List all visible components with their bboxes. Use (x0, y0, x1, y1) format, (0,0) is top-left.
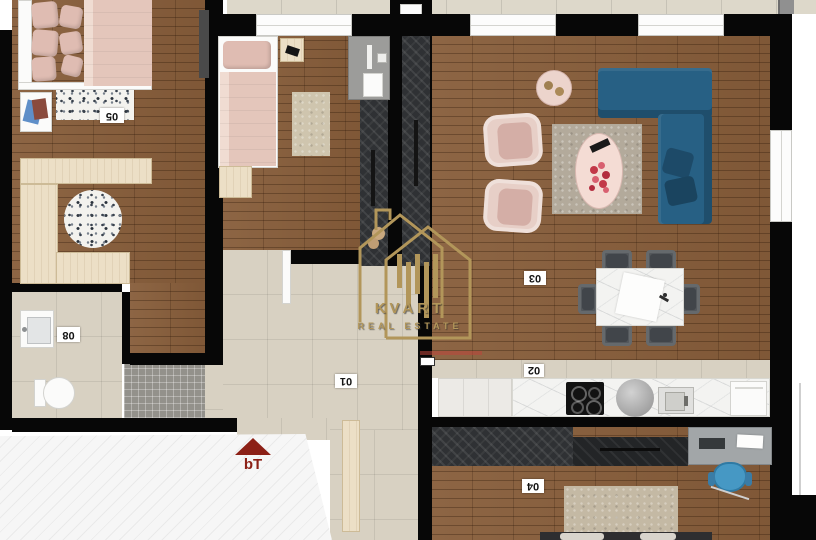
dining-table (596, 268, 684, 326)
cutoff-pillow (640, 533, 676, 540)
armchair-seat (497, 122, 533, 160)
room-label-02: 02 (524, 364, 544, 377)
shelf-item (367, 45, 372, 69)
entry-mosaic-floor (124, 364, 210, 418)
entrance-door-leaf (342, 420, 360, 532)
washbasin-bowl (27, 317, 51, 344)
window-living-east (770, 130, 792, 222)
room-label-04: 04 (522, 479, 544, 493)
wardrobe-row-right (573, 437, 688, 466)
bed-frame (18, 0, 32, 90)
pipe-shaft (778, 0, 794, 14)
kitchen-counter-left (438, 378, 512, 417)
armchair (482, 178, 543, 234)
pillow (31, 56, 57, 82)
kitchen-sink (658, 387, 694, 414)
desk-paper (737, 434, 764, 448)
armchair (482, 112, 543, 168)
room-label-08: 08 (57, 327, 80, 342)
wall-bathroom-north (12, 283, 122, 292)
cooktop (566, 382, 604, 415)
pillow (58, 4, 83, 29)
balcony-rail-line (799, 383, 801, 495)
pillow (31, 1, 60, 30)
room-label-05: 05 (100, 108, 124, 123)
brand-name: KVART (352, 300, 468, 318)
toilet (34, 376, 76, 410)
pillow (31, 29, 59, 57)
single-bed (218, 36, 278, 168)
wardrobe-handle (414, 120, 418, 186)
red-book (32, 98, 49, 120)
room-label-03: 03 (524, 271, 546, 285)
dining-chair (602, 324, 632, 346)
kitchen-column-hood (616, 379, 654, 417)
bed-blanket (220, 72, 276, 166)
bedroom-second-rug (292, 92, 330, 156)
floor-plan: 05 08 01 bT (0, 0, 816, 540)
wall-right-outer (770, 14, 792, 540)
cutoff-pillow (560, 533, 604, 540)
plan-marker (420, 357, 435, 366)
kitchen-floor-strip (432, 360, 770, 378)
office-chair (708, 460, 752, 502)
bed-foot-bench (219, 166, 252, 198)
bedroom-second-door-leaf (282, 250, 291, 304)
sofa-seat-top (598, 68, 712, 118)
entrance-arrow-icon (235, 438, 271, 455)
bedroom-main-door-leaf (199, 10, 209, 78)
flower-bouquet (588, 162, 612, 194)
window-living-1 (470, 14, 556, 36)
cutoff-furniture (540, 532, 712, 540)
wardrobe-handle (600, 448, 660, 451)
dining-chair (578, 284, 598, 314)
remote (589, 138, 610, 153)
cup (544, 81, 553, 90)
wardrobe-cream-top (20, 158, 152, 184)
wardrobe-cream-bottom (56, 252, 130, 284)
faucet (22, 327, 27, 332)
wall-bottom-right-corner (772, 495, 816, 540)
wardrobe-row-left (432, 427, 573, 466)
pillow (60, 54, 84, 78)
watermark-fineprint (420, 351, 482, 355)
side-table (536, 70, 572, 106)
table-keys-dot (663, 293, 667, 297)
coffee-table (575, 133, 623, 209)
phone (285, 45, 300, 57)
table-paper (615, 272, 665, 322)
cup (555, 87, 564, 96)
outside-area (0, 434, 332, 540)
bed-blanket (84, 0, 152, 86)
wall-extension-south (130, 353, 223, 365)
laptop (699, 438, 725, 449)
brand-tagline: REAL ESTATE (352, 320, 468, 332)
sink-faucet (684, 396, 688, 406)
wall-left-outer (0, 30, 12, 430)
nightstand (280, 38, 304, 62)
wall-bottom-left (12, 418, 237, 432)
round-rug (64, 190, 122, 248)
pillow (223, 41, 271, 69)
window-living-2 (638, 14, 724, 36)
wall-bathroom-east (122, 292, 130, 364)
double-bed (18, 0, 152, 90)
shelf-item (377, 53, 387, 63)
wardrobe-cream-left (20, 184, 58, 284)
hallway-floor-west (205, 365, 223, 418)
pillow (58, 30, 83, 55)
entrance-marker: bT (228, 456, 278, 474)
toilet-bowl (43, 377, 75, 409)
window-bedroom-second (256, 14, 352, 36)
wall-kitchen-south (432, 417, 770, 427)
terrace-tiles-top (227, 0, 816, 14)
bedroom-main-floor-extension (130, 283, 205, 353)
gray-shelf-unit (348, 36, 390, 100)
room-label-01: 01 (335, 374, 357, 388)
fridge (730, 381, 767, 416)
dining-chair (646, 324, 676, 346)
washbasin (20, 310, 54, 348)
shelf-box (363, 73, 383, 97)
bedside-bench (20, 92, 52, 132)
armchair-seat (497, 188, 533, 226)
